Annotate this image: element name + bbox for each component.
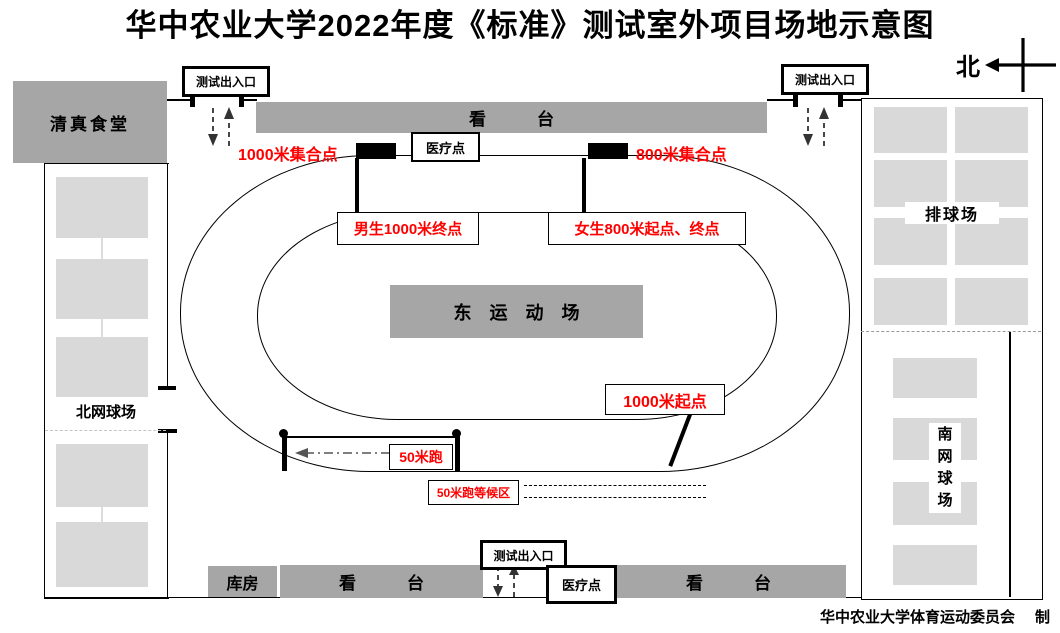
sprint-end-post [282,433,287,471]
entrance-flow-arrows-icon [203,106,239,148]
test-entrance-label: 测试出入口 [795,71,855,88]
warehouse-label: 库房 [226,570,258,594]
halal-canteen-label: 清真食堂 [50,110,130,135]
tennis-court [56,177,148,238]
test-entrance-top-left: 测试出入口 [182,66,270,97]
volleyball-court [955,107,1028,153]
north-tennis-divider [45,430,166,431]
north-tennis-border-lower [167,431,169,597]
grandstand-bottom-left: 看 台 [280,565,483,598]
tennis-court [56,259,148,319]
warehouse-building: 库房 [208,566,277,597]
page-title: 华中农业大学2022年度《标准》测试室外项目场地示意图 [0,0,1060,45]
east-stadium-label: 东 运 动 场 [454,299,580,325]
start-marker-800m [588,143,628,159]
sprint-direction-arrow-icon [295,446,391,460]
south-tennis-char: 网 [937,446,952,468]
volleyball-court [955,278,1028,325]
test-entrance-label: 测试出入口 [493,547,553,564]
start-marker-1000m [356,143,396,159]
north-tennis-label: 北网球场 [44,401,168,422]
marker-lead-line [582,158,586,213]
court-connector [101,505,103,523]
male-1000m-finish-label: 男生1000米终点 [354,218,462,239]
waiting-area-line [524,485,706,486]
start-1000m-box: 1000米起点 [605,384,725,415]
east-stadium-building: 东 运 动 场 [390,285,643,338]
tennis-court [56,444,148,507]
male-1000m-finish-box: 男生1000米终点 [337,212,479,245]
medical-point-label: 医疗点 [562,575,601,594]
venue-diagram: 华中农业大学2022年度《标准》测试室外项目场地示意图 北 清真食堂 北网球场 … [0,0,1060,633]
medical-point-top: 医疗点 [411,132,480,162]
marker-lead-line [355,158,359,213]
volleyball-label: 排球场 [905,202,999,224]
entrance-flow-arrows-icon [798,106,834,148]
volleyball-court [874,218,947,265]
waiting-area-line [524,497,706,498]
grandstand-bottom-right: 看 台 [611,565,846,598]
volleyball-court [874,107,947,153]
south-tennis-court [893,358,977,398]
north-arrow-icon [983,35,1057,95]
test-entrance-label: 测试出入口 [196,73,256,90]
assembly-800m-label: 800米集合点 [636,141,727,165]
fence-segment [167,99,191,101]
right-area-divider [861,331,1041,332]
grandstand-label: 看 台 [339,569,424,594]
female-800m-start-finish-box: 女生800米起点、终点 [548,212,746,245]
south-tennis-char: 球 [937,468,952,490]
test-entrance-top-right: 测试出入口 [781,64,869,95]
fence-segment [843,99,862,101]
credit-made-by: 制 [1035,606,1050,627]
grandstand-label: 看 台 [686,569,771,594]
halal-canteen-building: 清真食堂 [13,81,167,163]
medical-point-label: 医疗点 [426,138,465,157]
grandstand-top: 看 台 [256,102,767,133]
sprint-50m-box: 50米跑 [389,444,453,470]
waiting-50m-label: 50米跑等候区 [437,484,510,501]
tennis-court [56,337,148,397]
court-connector [101,238,103,260]
assembly-1000m-label: 1000米集合点 [238,141,338,165]
fence-segment [244,99,257,101]
gap-tick-top [158,386,176,390]
north-tennis-border-upper [167,163,169,388]
south-tennis-char: 场 [937,490,952,512]
tennis-court [56,522,148,587]
fence-segment [767,99,795,101]
volleyball-court [955,218,1028,265]
south-tennis-court [893,545,977,585]
start-1000m-label: 1000米起点 [623,388,707,412]
credit-line: 华中农业大学体育运动委员会 制 [818,606,1050,627]
volleyball-court [874,278,947,325]
credit-committee: 华中农业大学体育运动委员会 [820,606,1015,627]
medical-point-bottom: 医疗点 [546,565,617,604]
south-tennis-label: 南 网 球 场 [929,423,961,513]
compass-north-label: 北 [956,47,980,82]
court-connector [101,318,103,338]
sprint-lane-line [285,436,457,438]
volleyball-court [955,160,1028,207]
volleyball-court [874,160,947,207]
waiting-50m-box: 50米跑等候区 [428,480,519,505]
south-tennis-char: 南 [937,424,952,446]
female-800m-start-finish-label: 女生800米起点、终点 [574,218,719,239]
grandstand-label: 看 台 [469,105,554,130]
south-area-inner-wall [1009,332,1011,597]
sprint-start-post [455,433,460,471]
sprint-50m-label: 50米跑 [399,447,443,467]
